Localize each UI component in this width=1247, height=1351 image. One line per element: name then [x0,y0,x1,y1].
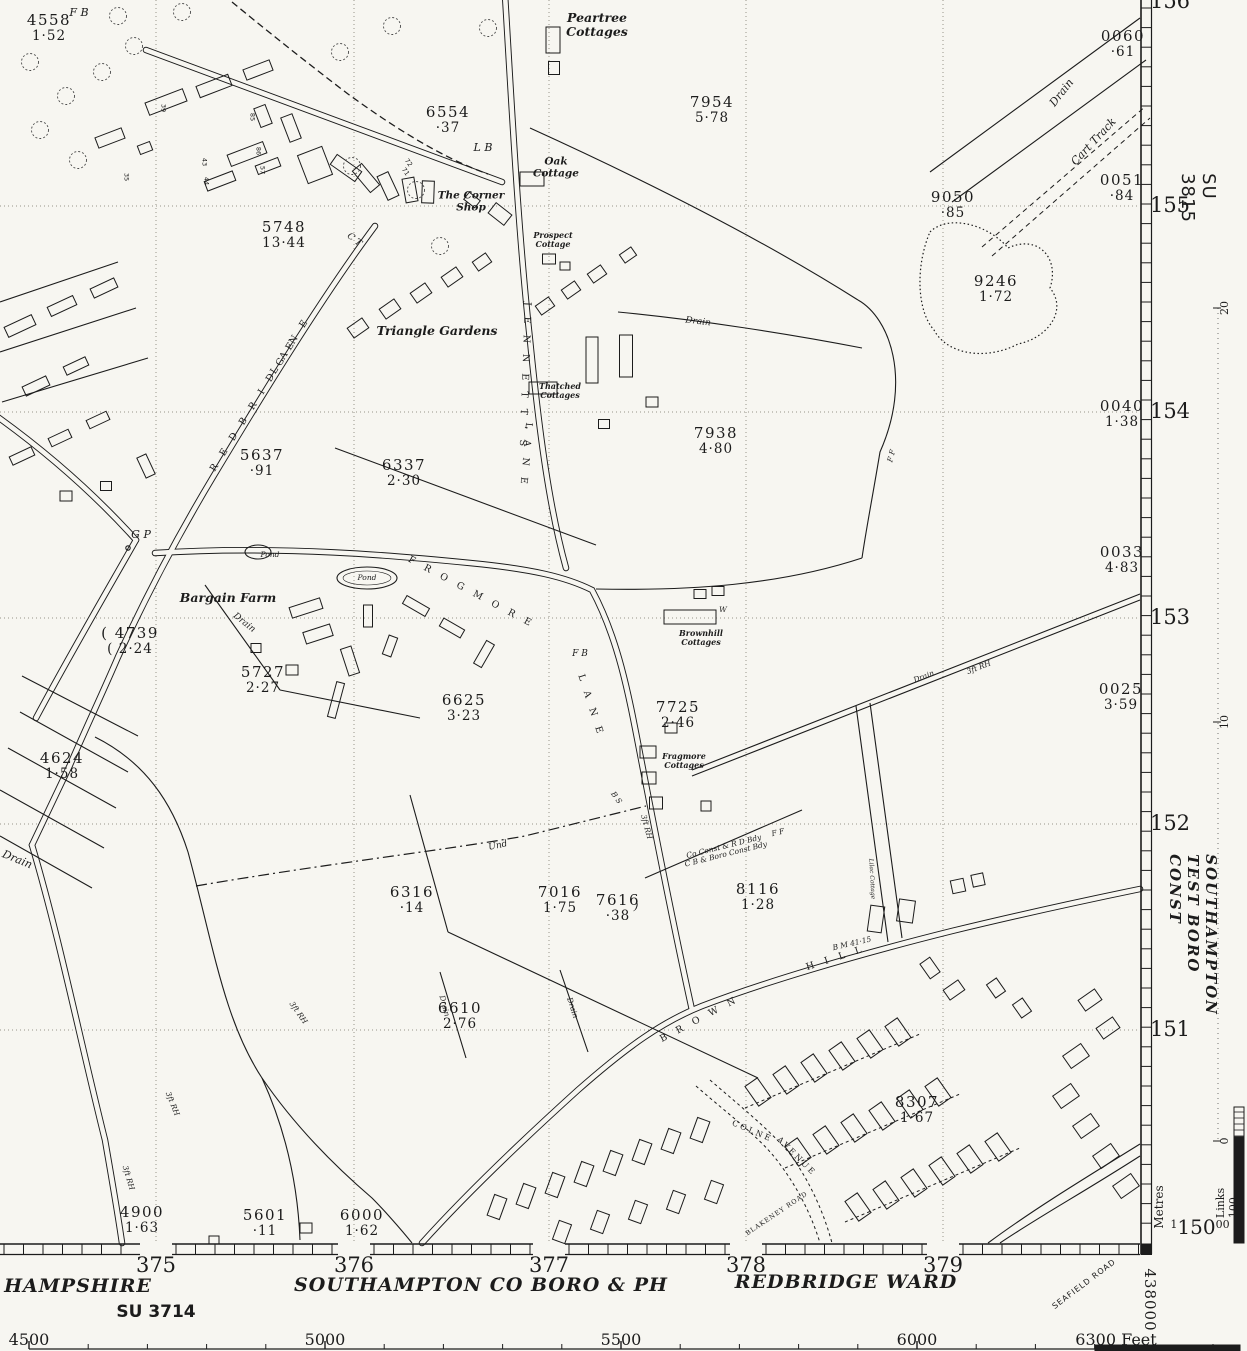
place-label: F F [771,827,785,838]
corner-easting: 438000 [1141,1268,1159,1331]
parcel-area: 2·76 [438,1017,482,1032]
scale-mark: 20 [1219,301,1231,315]
parcel-number: 0051 [1100,172,1144,189]
place-label: B S [609,790,623,806]
parcel-area: ·61 [1101,45,1145,60]
place-label: Pond [358,574,377,582]
parcel-number: 5748 [262,219,306,236]
house-number: 43 [200,158,207,166]
parcel-number: 0033 [1100,544,1144,561]
parcel-number: 0040 [1100,398,1144,415]
place-label: Triangle Gardens [377,324,498,338]
corner-northing-main: 150 [1177,1215,1215,1239]
county-label: HAMPSHIRE [4,1275,152,1297]
parcel-number: 5727 [241,664,285,681]
links-caption: Links 100 [1214,1188,1240,1218]
parcel-number: ( 4739 [101,625,159,642]
place-label: Drain [565,997,580,1020]
place-label: 3ft RH [287,1000,308,1025]
parcel-area: 1·72 [974,290,1018,305]
scale-mark: 10 [1219,715,1231,729]
grid-northing: 156 [1150,0,1190,14]
house-number: 85 [248,113,255,121]
parcel-0025: 00253·59 [1099,681,1143,713]
parcel-number: 0025 [1099,681,1143,698]
parcel-area: 1·67 [895,1111,939,1126]
place-label: Prospect Cottage [533,231,572,249]
road-name: BLAKENEY ROAD [745,1190,810,1237]
parcel-number: 6625 [442,692,486,709]
parcel-8116: 81161·28 [736,881,780,913]
place-label: Drain [913,669,936,684]
parcel-area: 1·58 [40,767,84,782]
house-number: 39 [159,104,166,112]
place-label: Cart Track [1069,116,1119,168]
parcel-area: 2·27 [241,681,285,696]
parcel-area: ( 2·24 [101,642,159,657]
place-label: Co Const & R D Bdy C B & Boro Const Bdy [682,833,768,870]
parcel-area: ·37 [426,121,470,136]
parcel-number: 6554 [426,104,470,121]
parcel-area: 1·62 [340,1224,384,1239]
parcel-area: 1·52 [27,29,71,44]
grid-northing: 154 [1150,400,1190,424]
sheet-ref-bottom: SU 3714 [116,1302,195,1322]
place-label: Drain [1048,77,1077,109]
parcel-area: 1·63 [120,1221,164,1236]
place-label: L B [474,142,493,154]
corner-northing-suffix: 00 [1216,1218,1230,1231]
parcel-area: ·85 [931,206,975,221]
road-name: AVENUE [775,1136,818,1179]
place-label: Drain [0,848,34,871]
parcel-number: 6337 [382,457,426,474]
sheet-ref-right: SU 3815 [1177,173,1219,223]
feet-scale-label: 5500 [601,1331,642,1349]
feet-scale-label: 6300 Feet [1075,1331,1156,1349]
parcel-number: 9050 [931,189,975,206]
parcel-4558: 45581·52 [27,12,71,44]
house-number: 35 [122,173,129,181]
place-label: Pond [261,551,280,559]
feet-scale-label: 5000 [305,1331,346,1349]
parcel-number: 8307 [895,1094,939,1111]
place-label: W [719,606,727,614]
parcel-4624: 46241·58 [40,750,84,782]
house-number: 57 [258,166,265,174]
parcel-number: 5637 [240,447,284,464]
parcel-area: 3·23 [442,709,486,724]
place-label: 3ft RH [120,1165,135,1191]
place-label: Drain [231,611,257,635]
parcel-5601: 5601·11 [243,1207,287,1239]
parcel-0033: 00334·83 [1100,544,1144,576]
parcel-number: 5601 [243,1207,287,1224]
road-name: B R O W N [659,995,742,1046]
place-label: Brownhill Cottages [679,629,723,647]
parcel-number: 7938 [694,425,738,442]
parcel-number: 0060 [1101,28,1145,45]
parcel-area: 5·78 [690,111,734,126]
grid-northing: 152 [1150,812,1190,836]
parcel-6554: 6554·37 [426,104,470,136]
parcel-area: 1·28 [736,898,780,913]
parcel-area: 4·80 [694,442,738,457]
road-name: F R O G M O R E [406,555,536,631]
ward-label: REDBRIDGE WARD [735,1271,957,1293]
place-label: 3ft RH [639,814,654,840]
parcel-area: ·91 [240,464,284,479]
parcel-5727: 57272·27 [241,664,285,696]
place-label: Fragmore Cottages [662,752,706,770]
borough-label: SOUTHAMPTON CO BORO & PH [294,1274,668,1296]
road-name: L A N E [575,673,605,739]
parcel-7954: 79545·78 [690,94,734,126]
place-label: G P [131,529,151,541]
place-label: Thatched Cottages [539,382,581,400]
place-label: 3ft RH [966,660,992,677]
road-name: COLNE [730,1119,773,1144]
parcel-number: 9246 [974,273,1018,290]
grid-northing: 151 [1150,1018,1190,1042]
parcel-area: ·11 [243,1224,287,1239]
parcel-4900: 49001·63 [120,1204,164,1236]
parcel-4739: ( 4739( 2·24 [101,625,159,657]
place-label: Drain [685,315,712,328]
parcel-number: 6316 [390,884,434,901]
corner-northing: 115000 [1170,1215,1229,1239]
house-number: 44 [202,177,209,185]
parcel-9050: 9050·85 [931,189,975,221]
parcel-6000: 60001·62 [340,1207,384,1239]
parcel-area: 1·38 [1100,415,1144,430]
place-label: Und [488,839,509,853]
place-label: Bargain Farm [180,591,276,605]
parcel-area: ·84 [1100,189,1144,204]
parcel-0051: 0051·84 [1100,172,1144,204]
parcel-number: 7016 [538,884,582,901]
place-label: Lilac Cottage [867,859,876,900]
place-label: Peartree Cottages [566,11,628,39]
parcel-number: 7954 [690,94,734,111]
parcel-number: 7725 [656,699,700,716]
parcel-number: 4624 [40,750,84,767]
parcel-0060: 0060·61 [1101,28,1145,60]
parcel-area: ·14 [390,901,434,916]
parcel-5748: 574813·44 [262,219,306,251]
parcel-area: 3·59 [1099,698,1143,713]
os-map-sheet: 45581·526554·3779545·789050·850060·61005… [0,0,1247,1351]
place-label: Oak Cottage [533,156,579,180]
parcel-area: 2·46 [656,716,700,731]
parcel-number: 6000 [340,1207,384,1224]
place-label: F F [886,449,897,464]
parcel-6316: 6316·14 [390,884,434,916]
place-label: C T [345,231,364,249]
corner-northing-prefix: 1 [1170,1218,1177,1231]
house-number: 86 [254,147,261,155]
parcel-8307: 83071·67 [895,1094,939,1126]
parcel-area: 13·44 [262,236,306,251]
parcel-5637: 5637·91 [240,447,284,479]
parcel-6337: 63372·30 [382,457,426,489]
parcel-number: 8116 [736,881,780,898]
parcel-9246: 92461·72 [974,273,1018,305]
parcel-area: 4·83 [1100,561,1144,576]
parcel-7938: 79384·80 [694,425,738,457]
scale-mark: 0 [1219,1138,1231,1145]
constituency-label: SOUTHAMPTON TEST BORO CONST [1166,854,1220,1016]
parcel-area: 2·30 [382,474,426,489]
place-label: F B [572,649,588,659]
parcel-area: 1·75 [538,901,582,916]
parcel-number: 4900 [120,1204,164,1221]
parcel-number: 4558 [27,12,71,29]
parcel-7016: 70161·75 [538,884,582,916]
parcel-0040: 00401·38 [1100,398,1144,430]
map-labels: 45581·526554·3779545·789050·850060·61005… [0,0,1247,1351]
place-label: 3ft RH [163,1091,180,1117]
feet-scale-label: 6000 [897,1331,938,1349]
house-number: 71 [400,167,411,178]
metres-caption: Metres [1152,1185,1166,1228]
feet-scale-label: 4500 [9,1331,50,1349]
parcel-7725: 77252·46 [656,699,700,731]
grid-northing: 153 [1150,606,1190,630]
place-label: The Corner Shop [438,190,505,214]
place-label: F B [69,7,88,19]
parcel-6625: 66253·23 [442,692,486,724]
